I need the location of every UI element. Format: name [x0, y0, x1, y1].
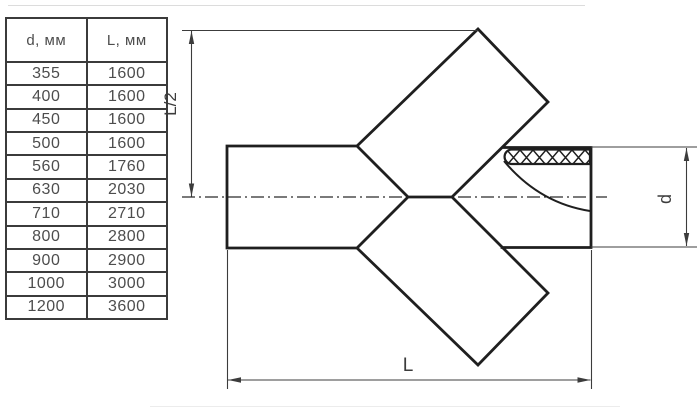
- arrow-up-icon: [684, 148, 689, 161]
- branch-saddle-curve: [504, 161, 590, 211]
- dim-label-length: L: [403, 355, 414, 376]
- arrow-down-icon: [189, 184, 194, 197]
- dim-label-diameter: d: [655, 194, 675, 204]
- fitting-diagram: L/2 d L: [0, 0, 700, 420]
- arrow-up-icon: [189, 31, 194, 44]
- arrow-left-icon: [228, 377, 241, 382]
- dim-label-half-length: L/2: [161, 92, 180, 116]
- seal-hatch-band: [505, 150, 590, 165]
- arrow-down-icon: [684, 233, 689, 246]
- page: d, мм L, мм 3551600 4001600 4501600 5001…: [0, 0, 700, 420]
- arrow-right-icon: [578, 377, 591, 382]
